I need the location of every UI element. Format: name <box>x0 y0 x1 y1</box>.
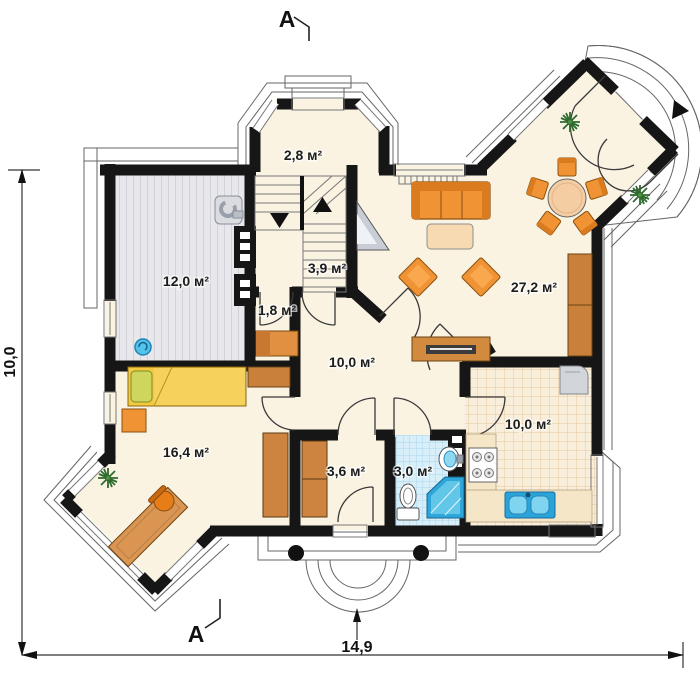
room-label-hall: 10,0 м² <box>329 354 375 370</box>
room-label-staircase: 3,9 м² <box>308 260 347 276</box>
plant-icon <box>560 112 580 132</box>
stove <box>469 448 497 482</box>
room-label-bathroom: 3,0 м² <box>394 463 433 479</box>
water-heater <box>215 196 243 224</box>
dimension-horizontal: 14,9 <box>341 639 372 656</box>
closet-wardrobe <box>256 331 298 356</box>
sofa <box>412 182 490 219</box>
sideboard <box>412 337 490 361</box>
porch-column <box>413 545 429 561</box>
room-label-vestibule: 2,8 м² <box>284 147 323 163</box>
terrace-direction-arrow <box>672 100 689 119</box>
kitchen-sink <box>505 492 555 518</box>
floor-plan-drawing: 2,8 м² 3,9 м² 1,8 м² 12,0 м² 10,0 м² 27,… <box>0 0 700 675</box>
room-label-living-room: 27,2 м² <box>511 279 557 295</box>
section-line-bottom <box>205 599 220 628</box>
floor-plan-page: 2,8 м² 3,9 м² 1,8 м² 12,0 м² 10,0 м² 27,… <box>0 0 700 675</box>
dining-chair <box>558 158 576 176</box>
porch-column <box>288 545 304 561</box>
room-label-kitchen: 10,0 м² <box>505 416 551 432</box>
room-label-garage: 12,0 м² <box>163 273 209 289</box>
floor-drain <box>135 339 151 355</box>
section-line-top <box>294 17 309 41</box>
coffee-table <box>427 224 473 249</box>
plant-icon <box>98 468 118 488</box>
section-marker-top: A <box>279 6 296 32</box>
porch <box>258 532 456 612</box>
plant-icon <box>630 185 650 205</box>
nightstand <box>122 409 146 432</box>
room-label-bedroom: 16,4 м² <box>163 444 209 460</box>
dimension-vertical: 10,0 <box>2 346 19 377</box>
entrance-step <box>285 76 351 88</box>
room-label-closet: 1,8 м² <box>258 302 297 318</box>
room-label-corridor: 3,6 м² <box>327 463 366 479</box>
wardrobe <box>263 433 288 517</box>
section-marker-bottom: A <box>188 621 205 647</box>
dresser <box>248 367 290 387</box>
pillow <box>131 371 152 402</box>
fridge <box>560 366 588 394</box>
entrance-step <box>292 88 344 98</box>
dining-table <box>548 179 586 217</box>
bed <box>128 367 246 406</box>
